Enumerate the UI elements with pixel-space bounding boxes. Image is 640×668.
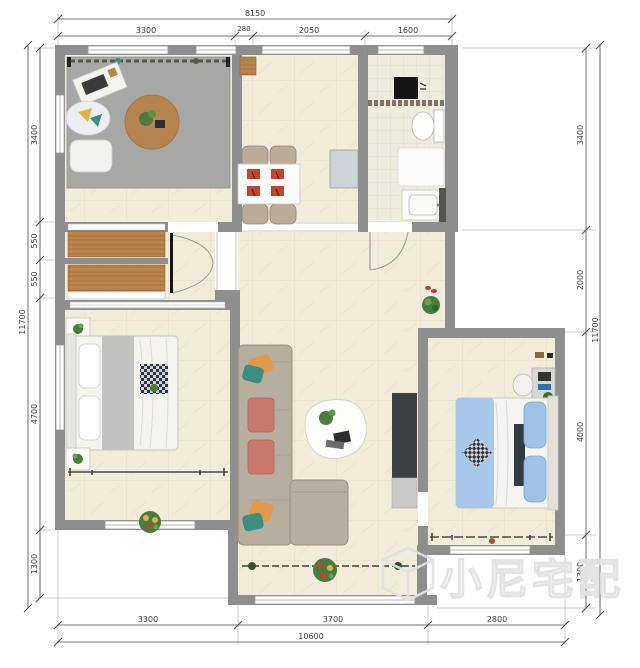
pillow [524,402,546,448]
pillow [70,140,112,172]
dim-bottom: 3300 3700 2800 10600 [54,615,569,646]
window [255,596,415,604]
dim-left: 3400 550 550 4700 1300 11700 [18,41,44,612]
dim-top-overall: 8150 [245,9,265,18]
floor-cushion [66,101,110,135]
desk-chair [513,374,533,396]
dim-right: 3400 2000 4000 1300 11700 [576,41,604,619]
nightstand [66,448,90,470]
dim-top-seg: 2050 [299,26,319,35]
toilet [412,110,444,142]
slippers [431,289,437,293]
dim-left-seg: 550 [30,271,39,286]
door-leaf [170,233,173,293]
dim-right-seg: 3400 [576,125,585,145]
dim-left-seg: 550 [30,233,39,248]
dim-right-seg: 2000 [576,270,585,290]
coffee-table [305,400,366,459]
dim-top-seg: 3300 [136,26,156,35]
dim-left-seg: 3400 [30,125,39,145]
bedroom-right-door-opening [418,492,428,526]
bed [456,396,558,510]
window [88,46,168,54]
round-rug [125,95,179,149]
dim-left-overall: 11700 [18,309,27,334]
bed [66,334,178,452]
wardrobe-cabinet [68,265,165,291]
blanket [102,336,134,450]
headboard [66,334,76,452]
bathroom-door-opening [368,222,412,232]
window [450,546,530,554]
window [378,46,424,54]
dim-bottom-seg: 3700 [323,615,343,624]
pillow [79,344,100,388]
flower-decor [489,538,495,544]
dim-top-seg: 280 [237,25,250,33]
dim-left-seg: 1300 [30,554,39,574]
dining-chair [242,204,268,224]
tv-unit [392,393,417,478]
pillow [79,396,100,440]
dim-bottom-overall: 10600 [298,632,323,641]
entry-opening [168,222,218,232]
entry-double-door [168,232,215,293]
watermark-text: 小尼宅配 [440,555,624,604]
bathroom-vanity [402,188,446,222]
headboard [548,396,558,510]
sofa-chaise [290,480,348,545]
window [56,95,64,153]
leisure-room [66,57,230,188]
laptop-icon [538,372,551,381]
floor-plan-canvas: 8150 3300 280 2050 1600 3400 550 550 470… [0,0,640,668]
window [196,46,236,54]
duct-column [240,57,256,75]
floor-plan: 8150 3300 280 2050 1600 3400 550 550 470… [0,0,640,668]
sideboard [330,150,358,188]
dim-left-seg: 4700 [30,404,39,424]
balcony-flowers [139,511,161,533]
dim-right-overall: 11700 [591,317,600,342]
bedroom-left-sliding-door [70,302,225,308]
cushion [248,440,274,474]
cushion [248,398,274,432]
dim-top: 8150 3300 280 2050 1600 [54,9,456,40]
pillow [524,456,546,502]
wardrobe-cabinet [68,231,165,257]
balcony-flowers [313,558,337,582]
tv-shelf [392,478,417,508]
potted-plant [422,296,440,314]
shower-tray [398,148,444,186]
dim-bottom-seg: 3300 [138,615,158,624]
dining-chair [242,146,268,166]
corridor-wardrobes [65,224,168,299]
washing-machine [394,77,418,99]
window [56,345,64,430]
dining-chair [270,146,296,166]
window [262,46,350,54]
bed-runner [514,424,525,486]
dim-bottom-seg: 2800 [487,615,507,624]
dining-chair [270,204,296,224]
passage-opening [215,232,238,290]
dim-top-seg: 1600 [398,26,418,35]
dim-right-seg: 4000 [576,422,585,442]
